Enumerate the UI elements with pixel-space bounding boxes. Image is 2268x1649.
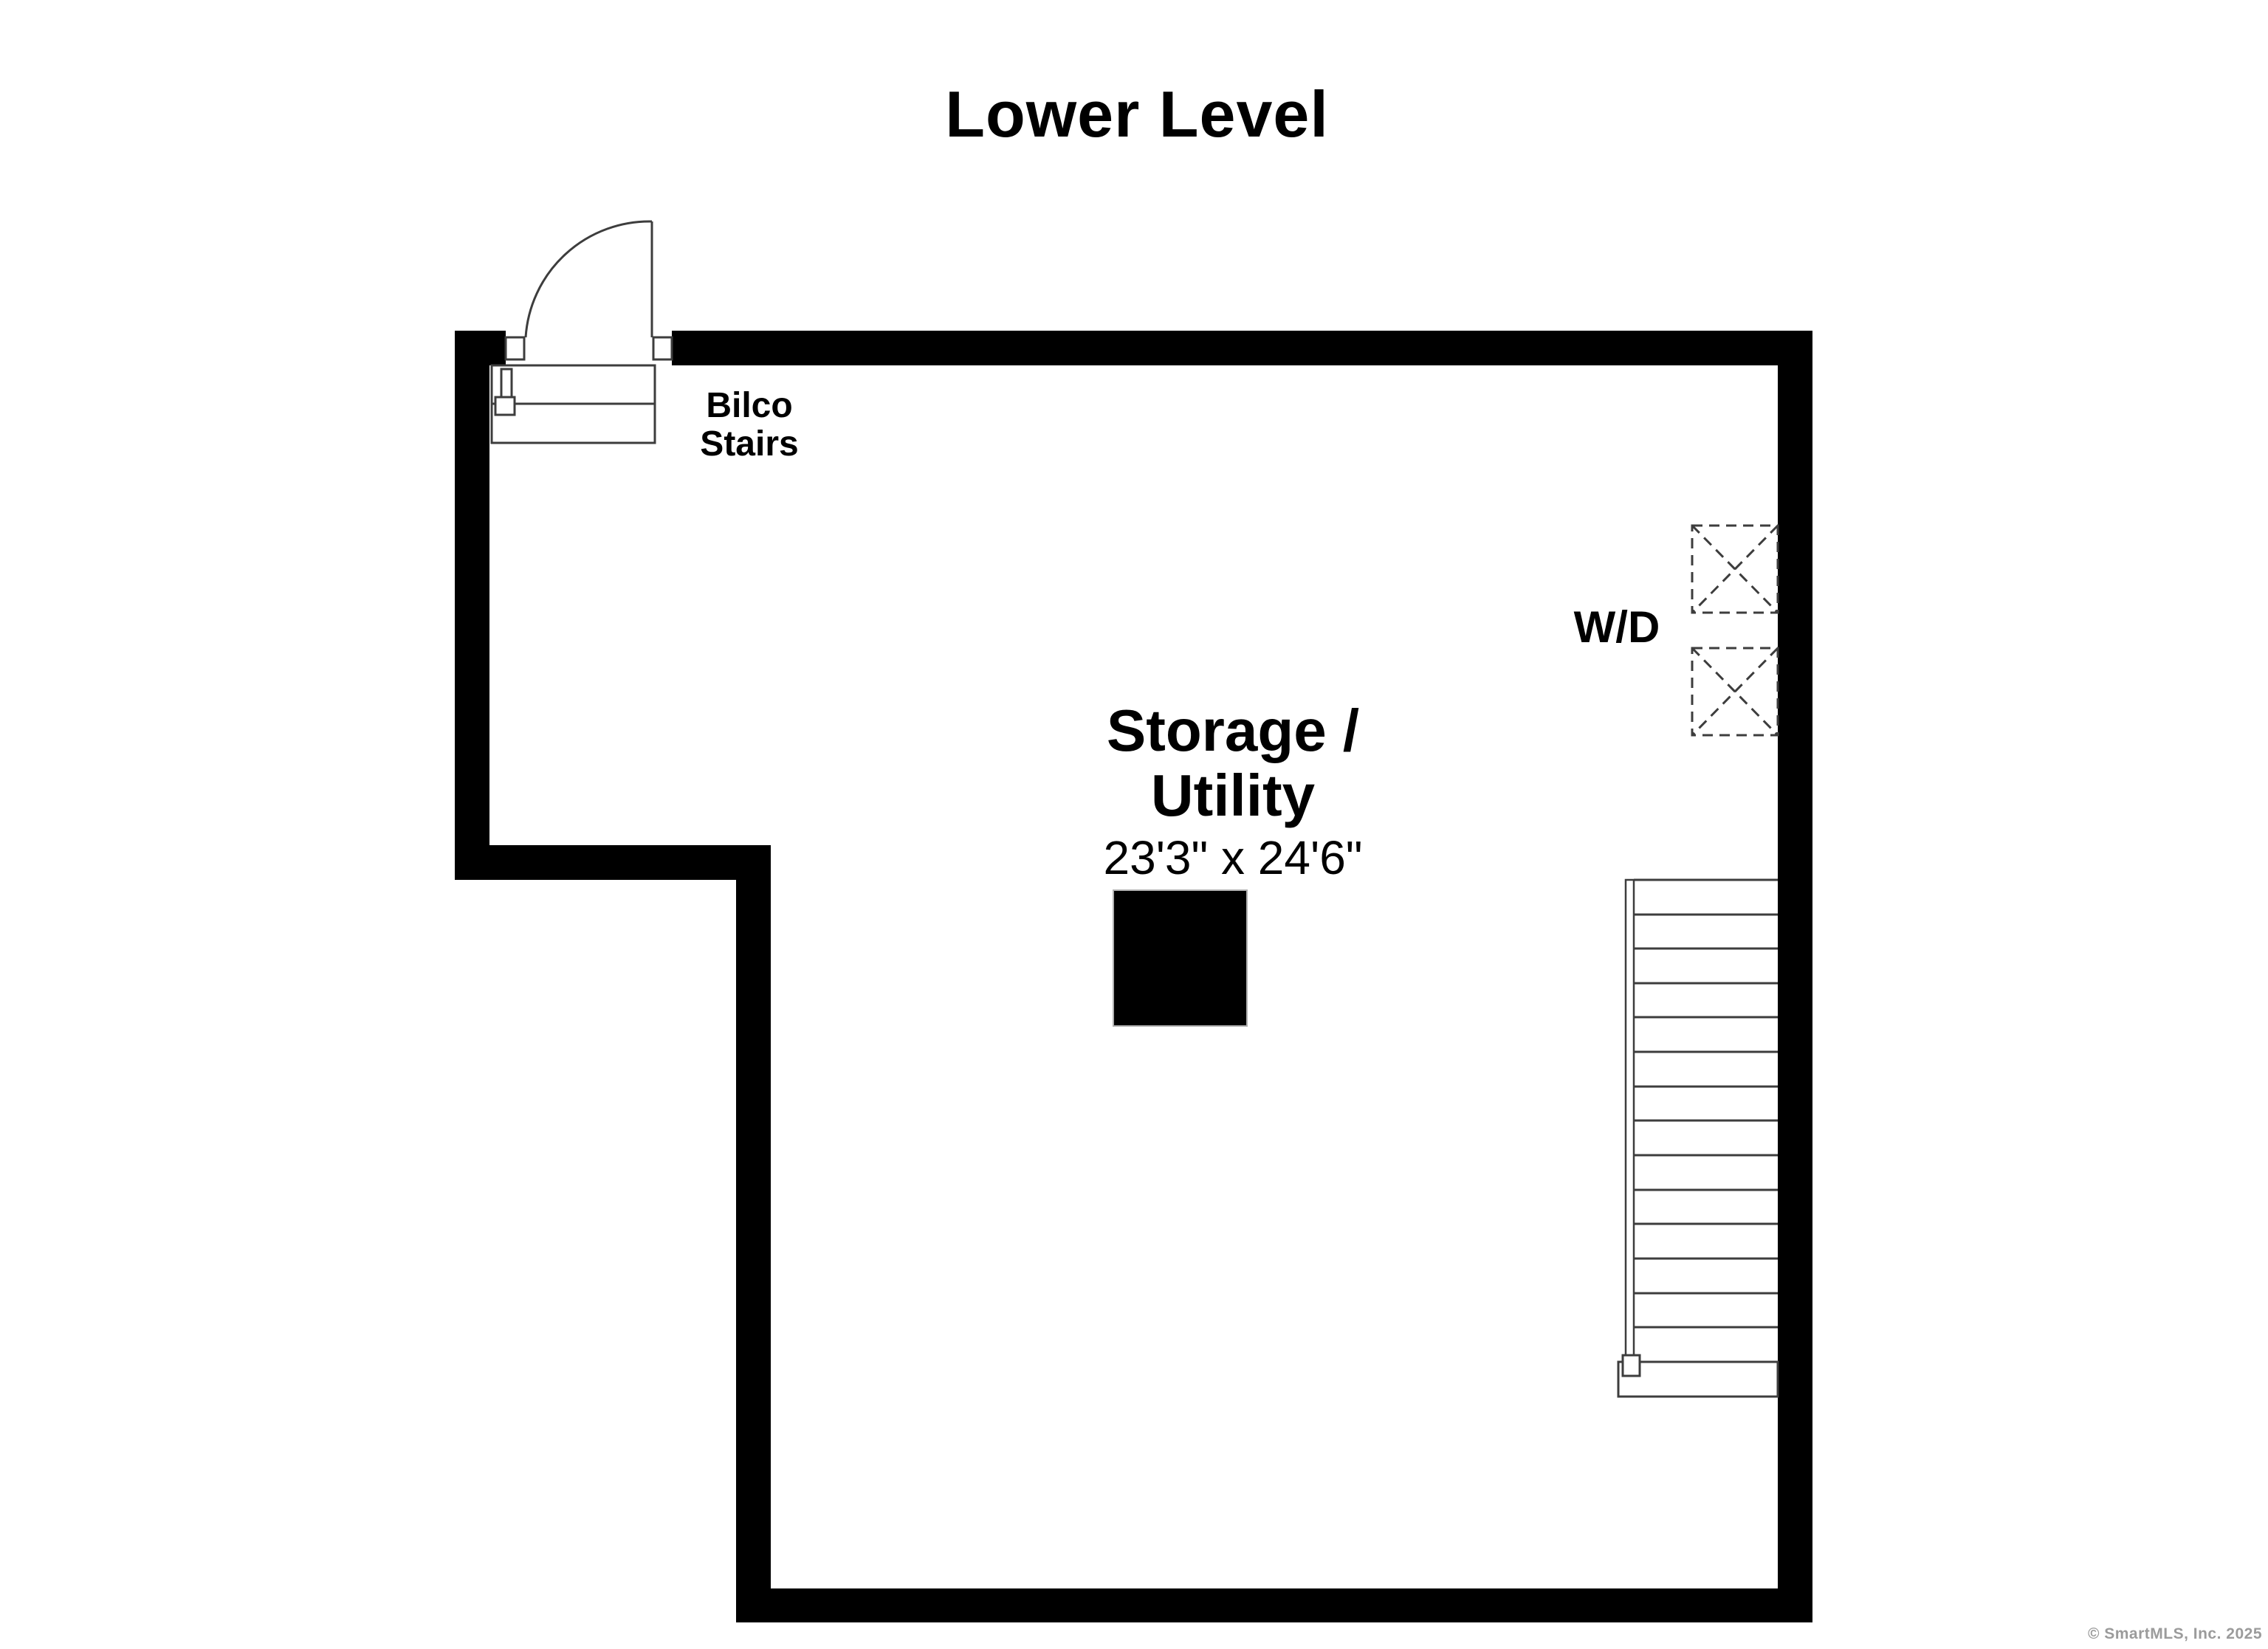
bilco-stairs-label-line2: Stairs [639, 425, 860, 464]
stair-treads [1634, 880, 1778, 1327]
washer-dryer-boxes [1692, 526, 1778, 735]
wall-right [1778, 331, 1812, 1622]
door-swing-icon [506, 221, 672, 359]
room-dimensions: 23'3" x 24'6" [1011, 831, 1454, 884]
support-column [1113, 890, 1247, 1026]
bilco-latch-stem [501, 369, 512, 399]
door-arc [526, 221, 652, 337]
door-jamb-left [506, 337, 524, 359]
stair-newel-post [1623, 1355, 1640, 1376]
wall-step [455, 845, 771, 880]
wall-left-upper [455, 331, 489, 880]
copyright-text: © SmartMLS, Inc. 2025 [2088, 1625, 2262, 1643]
washer-box-icon [1692, 526, 1778, 613]
washer-dryer-label: W/D [1536, 602, 1698, 653]
floorplan-page: Lower Level [0, 0, 2268, 1649]
column-square [1113, 890, 1247, 1026]
bilco-latch-base [495, 397, 515, 415]
wall-bottom [736, 1588, 1812, 1622]
wall-left-lower [736, 845, 771, 1622]
stair-landing [1618, 1362, 1778, 1397]
door-jamb-right [653, 337, 672, 359]
dryer-box-icon [1692, 648, 1778, 735]
bilco-stairs-label: Bilco Stairs [639, 387, 860, 464]
stair-stringer [1626, 880, 1634, 1362]
room-name-line2: Utility [1011, 763, 1454, 828]
room-label: Storage / Utility 23'3" x 24'6" [1011, 698, 1454, 884]
wall-top [672, 331, 1812, 365]
staircase-icon [1618, 880, 1778, 1397]
bilco-bulkhead [492, 365, 655, 443]
bilco-stairs-label-line1: Bilco [639, 387, 860, 425]
room-name-line1: Storage / [1011, 698, 1454, 763]
